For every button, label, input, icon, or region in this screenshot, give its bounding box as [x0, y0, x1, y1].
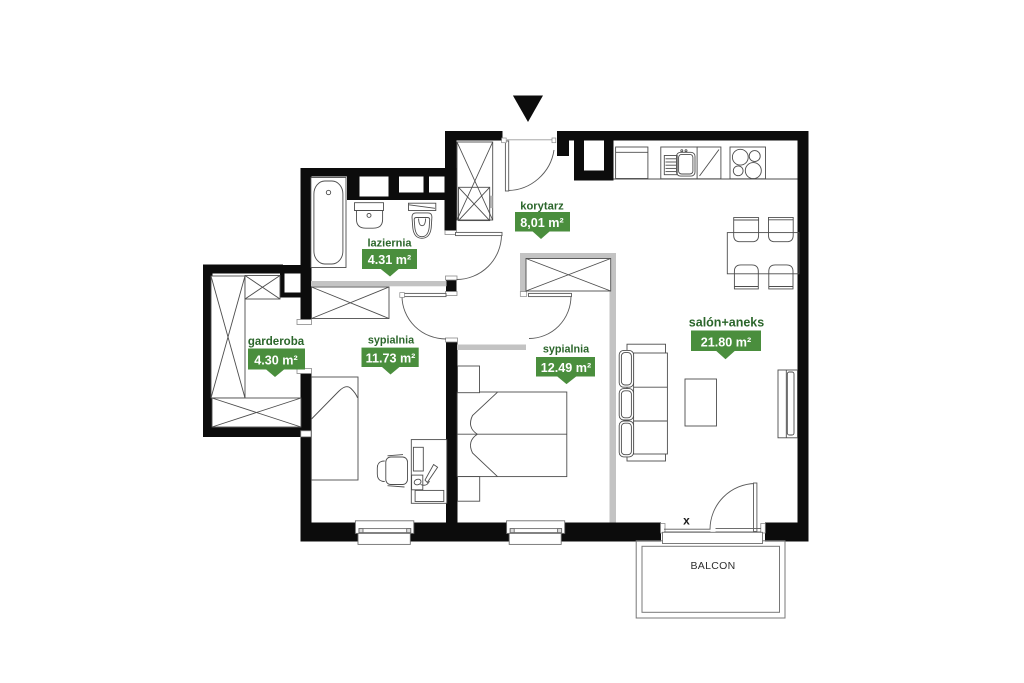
svg-text:garderoba: garderoba	[248, 336, 305, 348]
svg-text:4.31 m²: 4.31 m²	[368, 253, 411, 267]
svg-text:21.80 m²: 21.80 m²	[701, 336, 751, 350]
svg-text:laziernia: laziernia	[367, 237, 412, 249]
svg-text:korytarz: korytarz	[520, 200, 564, 212]
svg-text:12.49 m²: 12.49 m²	[541, 361, 591, 375]
svg-text:sypialnia: sypialnia	[543, 344, 590, 356]
svg-text:salón+aneks: salón+aneks	[689, 316, 764, 330]
svg-text:sypialnia: sypialnia	[368, 335, 415, 347]
svg-text:4.30 m²: 4.30 m²	[254, 354, 297, 368]
svg-text:8,01 m²: 8,01 m²	[520, 216, 563, 230]
svg-text:BALCON: BALCON	[691, 560, 736, 572]
svg-text:x: x	[683, 514, 690, 528]
svg-text:11.73 m²: 11.73 m²	[366, 352, 416, 366]
